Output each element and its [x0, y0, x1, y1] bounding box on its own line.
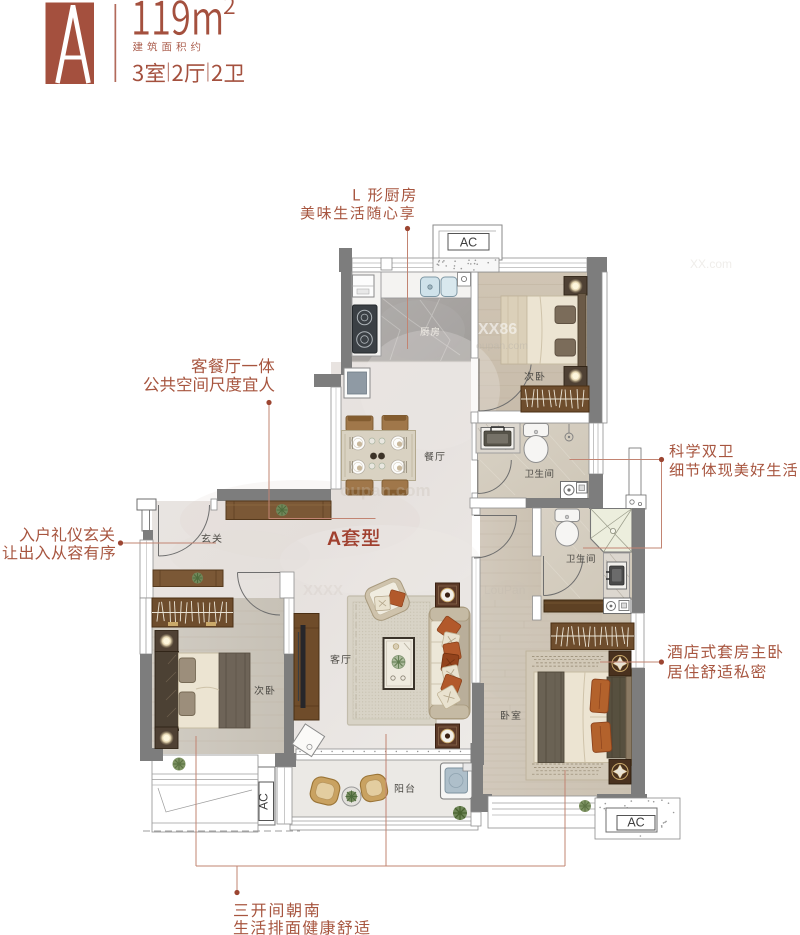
svg-text:AC: AC [460, 236, 477, 250]
svg-text:XX.com: XX.com [690, 257, 732, 271]
svg-text:AC: AC [627, 816, 644, 830]
svg-text:LouPan: LouPan [484, 583, 525, 597]
svg-text:XX86: XX86 [478, 321, 517, 338]
svg-text:A: A [327, 528, 341, 550]
svg-text:oupan.com: oupan.com [476, 340, 528, 352]
svg-text:oupan.com: oupan.com [340, 481, 431, 500]
svg-text:AC: AC [257, 793, 271, 810]
svg-text:XXXX: XXXX [303, 582, 343, 599]
